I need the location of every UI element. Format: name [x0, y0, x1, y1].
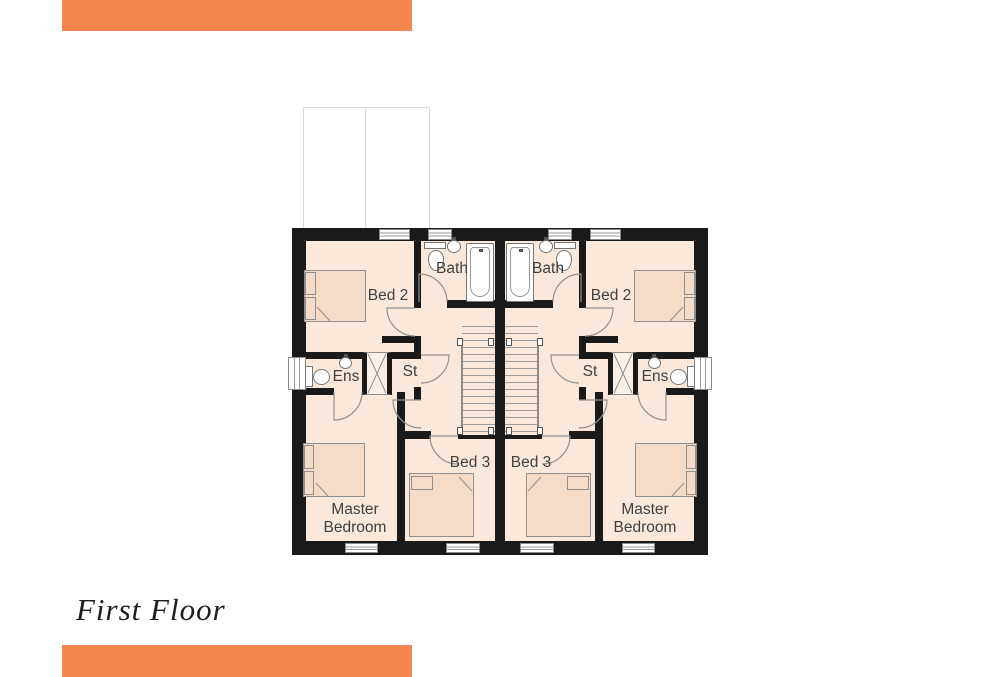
room-label-master-right-line1: Master	[621, 501, 668, 519]
stair-stringer	[537, 338, 539, 435]
roof-outline	[303, 107, 430, 230]
toilet-cistern	[424, 242, 446, 249]
window	[379, 229, 410, 240]
room-label-st-right: St	[583, 363, 598, 381]
window	[622, 543, 655, 553]
room-label-master-right-line2: Bedroom	[614, 519, 677, 537]
wall	[397, 431, 431, 439]
wall-exterior-top	[292, 228, 708, 241]
toilet-cistern	[305, 366, 313, 387]
wall	[579, 241, 586, 308]
toilet-cistern	[554, 242, 576, 249]
stair-newel	[506, 338, 512, 346]
window	[590, 229, 621, 240]
window	[428, 229, 452, 240]
wall	[414, 241, 421, 308]
wall	[414, 336, 421, 353]
stair-newel	[506, 427, 512, 435]
sink-tap	[652, 354, 656, 357]
room-label-ens-left: Ens	[333, 368, 360, 386]
wall	[638, 352, 696, 359]
room-label-bed2-right: Bed 2	[591, 287, 632, 305]
wall	[595, 392, 603, 541]
wall-party	[495, 241, 505, 541]
wall	[392, 352, 421, 359]
bathtub	[506, 243, 534, 302]
window	[288, 357, 306, 390]
bathtub-basin	[510, 247, 530, 297]
wall	[304, 352, 362, 359]
bathtub	[466, 243, 494, 302]
stair-newel	[537, 338, 543, 346]
stair-newel	[488, 338, 494, 346]
pillow	[304, 471, 314, 495]
room-label-ens-right: Ens	[642, 368, 669, 386]
toilet-cistern	[687, 366, 695, 387]
room-label-bed2-left: Bed 2	[368, 287, 409, 305]
room-label-bed3-right: Bed 3	[511, 454, 552, 472]
pillow	[567, 476, 589, 490]
window	[694, 357, 712, 390]
room-label-st-left: St	[403, 363, 418, 381]
pillow	[305, 272, 316, 295]
bathtub-faucet	[479, 249, 483, 252]
window	[345, 543, 378, 553]
stair-newel	[457, 338, 463, 346]
wall-exterior-right	[694, 228, 708, 555]
stair-newel	[537, 427, 543, 435]
top-accent-bar	[62, 0, 412, 31]
stair-stringer	[461, 338, 463, 435]
page-title: First Floor	[76, 592, 226, 628]
wall	[579, 387, 586, 400]
stair-newel	[488, 427, 494, 435]
pillow	[411, 476, 433, 490]
roof-outline-divider	[365, 107, 366, 228]
pillow	[686, 471, 696, 495]
window	[446, 543, 480, 553]
wall	[581, 336, 618, 343]
wall	[579, 352, 608, 359]
stair-newel	[457, 427, 463, 435]
wall	[569, 431, 603, 439]
sink-basin	[539, 240, 553, 253]
sink-tap	[544, 237, 548, 240]
pillow	[304, 445, 314, 469]
room-label-bed3-left: Bed 3	[450, 454, 491, 472]
toilet-bowl	[670, 369, 687, 385]
toilet-bowl	[313, 369, 330, 385]
room-label-master-left-line2: Bedroom	[324, 519, 387, 537]
pillow	[305, 297, 316, 320]
pillow	[684, 272, 695, 295]
pillow	[684, 297, 695, 320]
window	[548, 229, 572, 240]
pillow	[686, 445, 696, 469]
room-label-bath-right: Bath	[532, 260, 564, 278]
sink-tap	[452, 237, 456, 240]
wall	[666, 388, 696, 395]
wardrobe	[608, 352, 638, 395]
room-label-master-left-line1: Master	[331, 501, 378, 519]
room-label-bath-left: Bath	[436, 260, 468, 278]
sink-basin	[447, 240, 461, 253]
floor-plan-page: First Floor	[0, 0, 1000, 677]
wall	[579, 336, 586, 353]
bathtub-faucet	[519, 249, 523, 252]
sink-tap	[344, 354, 348, 357]
wall	[397, 392, 405, 541]
wall	[414, 387, 421, 400]
bottom-accent-bar	[62, 645, 412, 677]
bathtub-basin	[470, 247, 490, 297]
wall	[304, 388, 334, 395]
window	[520, 543, 554, 553]
wardrobe	[362, 352, 392, 395]
